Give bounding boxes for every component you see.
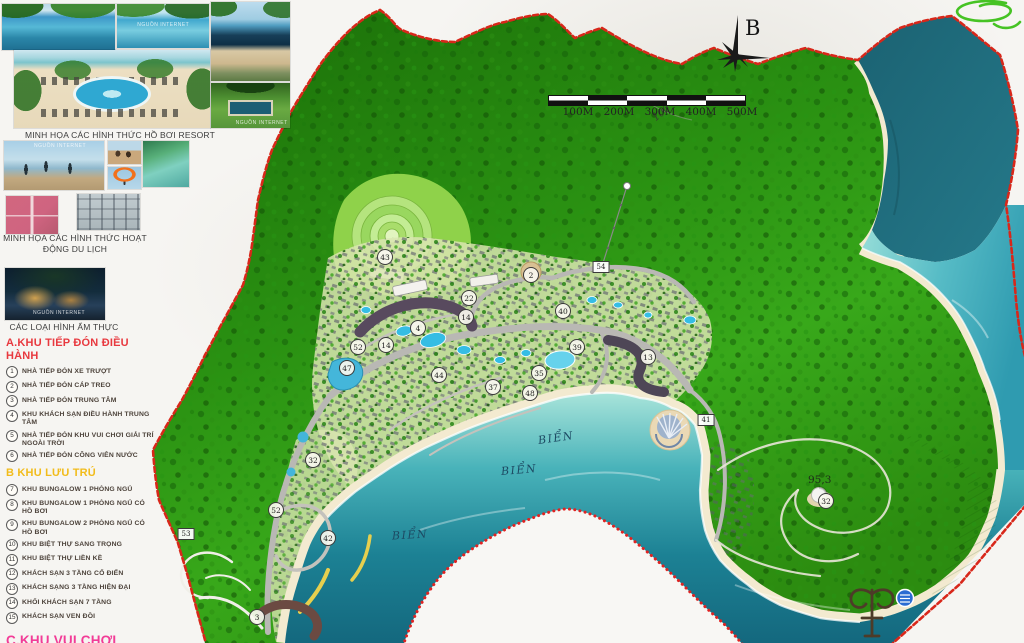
map-marker-2: 2 [523, 267, 539, 283]
watermark: NGUỒN INTERNET [236, 120, 288, 126]
legend-item-11: 11KHU BIỆT THỰ LIỀN KỀ [6, 554, 156, 566]
photo-pool-1 [2, 4, 115, 50]
legend-item-13: 13KHÁCH SẠNG 3 TẦNG HIỆN ĐẠI [6, 583, 156, 595]
legend-item-label: NHÀ TIẾP ĐÓN TRUNG TÂM [22, 395, 117, 405]
map-marker-14: 14 [378, 337, 394, 353]
photo-activity-horses [108, 141, 141, 164]
photo-activity-building [77, 194, 140, 230]
legend-item-7: 7KHU BUNGALOW 1 PHÒNG NGỦ [6, 484, 156, 496]
photo-activity-tennis [6, 196, 58, 234]
photo-pool-4 [14, 50, 210, 128]
legend-item-8: 8KHU BUNGALOW 1 PHÒNG NGỦ CÓ HỒ BƠI [6, 499, 156, 517]
legend-item-15: 15KHÁCH SẠN VEN ĐỒI [6, 612, 156, 624]
photo-activity-yoga: NGUỒN INTERNET [4, 141, 104, 190]
map-marker-13: 13 [640, 349, 656, 365]
photo-pool-3 [211, 2, 290, 81]
scale-label-200M: 200M [597, 106, 641, 118]
legend-item-number: 11 [6, 554, 18, 566]
map-marker-35: 35 [531, 365, 547, 381]
legend-item-4: 4KHU KHÁCH SẠN ĐIỀU HÀNH TRUNG TÂM [6, 410, 156, 428]
legend-item-6: 6NHÀ TIẾP ĐÓN CÔNG VIÊN NƯỚC [6, 450, 156, 462]
legend-item-label: NHÀ TIẾP ĐÓN KHU VUI CHƠI GIẢI TRÍ NGOÀI… [22, 430, 156, 448]
legend-item-2: 2NHÀ TIẾP ĐÓN CÁP TREO [6, 381, 156, 393]
watermark: NGUỒN INTERNET [34, 143, 86, 149]
legend-item-number: 1 [6, 366, 18, 378]
legend-item-label: KHU KHÁCH SẠN ĐIỀU HÀNH TRUNG TÂM [22, 410, 156, 428]
map-marker-52: 52 [268, 502, 284, 518]
map-marker-39: 39 [569, 339, 585, 355]
photo-activity-paragliding [108, 167, 141, 189]
legend-item-number: 5 [6, 430, 18, 442]
legend-item-label: KHU BUNGALOW 2 PHÒNG NGỦ CÓ HỒ BƠI [22, 519, 156, 537]
legend-item-number: 10 [6, 539, 18, 551]
legend-item-1: 1NHÀ TIẾP ĐÓN XE TRƯỢT [6, 366, 156, 378]
legend-item-label: NHÀ TIẾP ĐÓN XE TRƯỢT [22, 366, 111, 376]
sea-label-2: BIỂN [392, 528, 429, 543]
activity-section-caption: MINH HỌA CÁC HÌNH THỨC HOẠT ĐỘNG DU LỊCH [0, 233, 150, 256]
watermark: NGUỒN INTERNET [137, 22, 189, 28]
map-marker-3: 3 [249, 609, 265, 625]
map-marker-40: 40 [555, 303, 571, 319]
map-marker-41: 41 [698, 414, 715, 426]
scale-label-100M: 100M [556, 106, 600, 118]
scale-bar [548, 95, 746, 106]
map-marker-37: 37 [485, 379, 501, 395]
map-marker-47: 47 [339, 360, 355, 376]
legend-item-label: KHỐI KHÁCH SẠN 7 TẦNG [22, 597, 112, 607]
map-marker-42: 42 [320, 530, 336, 546]
photo-pool-5: NGUỒN INTERNET [211, 83, 290, 128]
sea-badge [897, 590, 914, 607]
legend: A.KHU TIẾP ĐÓN ĐIỀU HÀNH1NHÀ TIẾP ĐÓN XE… [6, 332, 156, 643]
map-marker-44: 44 [431, 367, 447, 383]
legend-item-label: NHÀ TIẾP ĐÓN CÁP TREO [22, 381, 111, 391]
legend-item-number: 4 [6, 410, 18, 422]
legend-item-12: 12KHÁCH SẠN 3 TẦNG CỔ ĐIỂN [6, 568, 156, 580]
legend-item-14: 14KHỐI KHÁCH SẠN 7 TẦNG [6, 597, 156, 609]
legend-item-10: 10KHU BIỆT THỰ SANG TRỌNG [6, 539, 156, 551]
map-marker-14: 14 [458, 309, 474, 325]
compass-rose-icon [712, 10, 804, 94]
legend-item-label: KHÁCH SẠNG 3 TẦNG HIỆN ĐẠI [22, 583, 131, 593]
legend-item-number: 6 [6, 450, 18, 462]
map-marker-43: 43 [377, 249, 393, 265]
legend-item-label: KHU BUNGALOW 1 PHÒNG NGỦ [22, 484, 132, 494]
legend-item-number: 12 [6, 568, 18, 580]
photo-pool-2: NGUỒN INTERNET [117, 4, 209, 48]
elevation-label: 95,3 [808, 474, 831, 486]
map-marker-52: 52 [350, 339, 366, 355]
legend-item-number: 15 [6, 612, 18, 624]
legend-item-number: 7 [6, 484, 18, 496]
legend-item-label: KHÁCH SẠN VEN ĐỒI [22, 612, 95, 622]
pool-section-caption: MINH HỌA CÁC HÌNH THỨC HỒ BƠI RESORT [10, 130, 230, 141]
legend-section-title-A: A.KHU TIẾP ĐÓN ĐIỀU HÀNH [6, 337, 156, 362]
scale-bar-labels: 100M200M300M400M500M [548, 106, 768, 120]
legend-item-9: 9KHU BUNGALOW 2 PHÒNG NGỦ CÓ HỒ BƠI [6, 519, 156, 537]
legend-item-label: KHU BIỆT THỰ LIỀN KỀ [22, 554, 102, 564]
legend-item-label: KHU BUNGALOW 1 PHÒNG NGỦ CÓ HỒ BƠI [22, 499, 156, 517]
map-marker-32: 32 [305, 452, 321, 468]
photo-activity-pool-games [143, 141, 189, 187]
photo-dining-night: NGUỒN INTERNET [5, 268, 105, 320]
legend-item-number: 14 [6, 597, 18, 609]
map-marker-54: 54 [593, 261, 610, 273]
legend-section-title-C: C.KHU VUI CHƠI NGOÀI TRỜI [6, 633, 156, 643]
scale-label-400M: 400M [679, 106, 723, 118]
legend-item-number: 8 [6, 499, 18, 511]
map-marker-48: 48 [522, 385, 538, 401]
scale-label-500M: 500M [720, 106, 764, 118]
legend-item-number: 13 [6, 583, 18, 595]
masterplan-page: 2341314142232323537394042434447485252415… [0, 0, 1024, 643]
map-marker-32: 32 [818, 493, 834, 509]
legend-item-number: 2 [6, 381, 18, 393]
green-scribble-annotation [942, 0, 1024, 32]
map-marker-4: 4 [410, 320, 426, 336]
legend-item-3: 3NHÀ TIẾP ĐÓN TRUNG TÂM [6, 395, 156, 407]
shell-stage [650, 410, 690, 450]
legend-item-5: 5NHÀ TIẾP ĐÓN KHU VUI CHƠI GIẢI TRÍ NGOÀ… [6, 430, 156, 448]
round-pool [73, 76, 151, 112]
legend-item-label: KHU BIỆT THỰ SANG TRỌNG [22, 539, 122, 549]
legend-item-label: KHÁCH SẠN 3 TẦNG CỔ ĐIỂN [22, 568, 123, 578]
scale-label-300M: 300M [638, 106, 682, 118]
legend-item-number: 3 [6, 395, 18, 407]
legend-section-title-B: B KHU LƯU TRÚ [6, 467, 156, 480]
map-marker-22: 22 [461, 290, 477, 306]
watermark: NGUỒN INTERNET [33, 310, 85, 316]
map-marker-53: 53 [178, 528, 195, 540]
legend-item-number: 9 [6, 519, 18, 531]
legend-item-label: NHÀ TIẾP ĐÓN CÔNG VIÊN NƯỚC [22, 450, 138, 460]
